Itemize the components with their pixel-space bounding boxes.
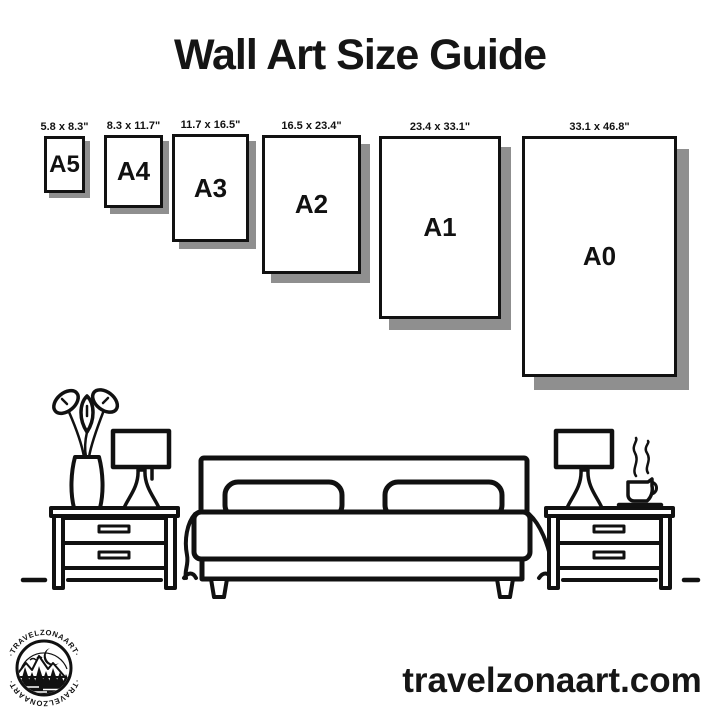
- lamp-base: [567, 470, 602, 508]
- bed-leg: [211, 579, 227, 597]
- vase-body: [71, 457, 102, 508]
- steam: [646, 441, 649, 473]
- nightstand-left-icon: [51, 508, 178, 588]
- coffee-cup-icon: [619, 438, 661, 505]
- nightstand-right-icon: [546, 508, 673, 588]
- wall-art-size-guide: Wall Art Size Guide 5.8 x 8.3" A5 8.3 x …: [0, 0, 720, 720]
- bed-icon: [184, 458, 551, 597]
- brand-logo: ·TRAVELZONAART· ·TRAVELZONAART·: [1, 625, 87, 711]
- table-lamp-icon: [113, 431, 169, 508]
- stem: [85, 432, 87, 457]
- bed-leg: [497, 579, 513, 597]
- lamp-shade: [113, 431, 169, 467]
- bedroom-illustration: [0, 0, 720, 720]
- website-url: travelzonaart.com: [402, 661, 702, 701]
- table-lamp-icon: [556, 431, 612, 508]
- nightstand-top: [546, 508, 673, 516]
- steam: [634, 438, 637, 476]
- lamp-shade: [556, 431, 612, 467]
- mattress: [194, 512, 530, 559]
- cup-body: [628, 479, 652, 501]
- bed-base: [202, 559, 522, 579]
